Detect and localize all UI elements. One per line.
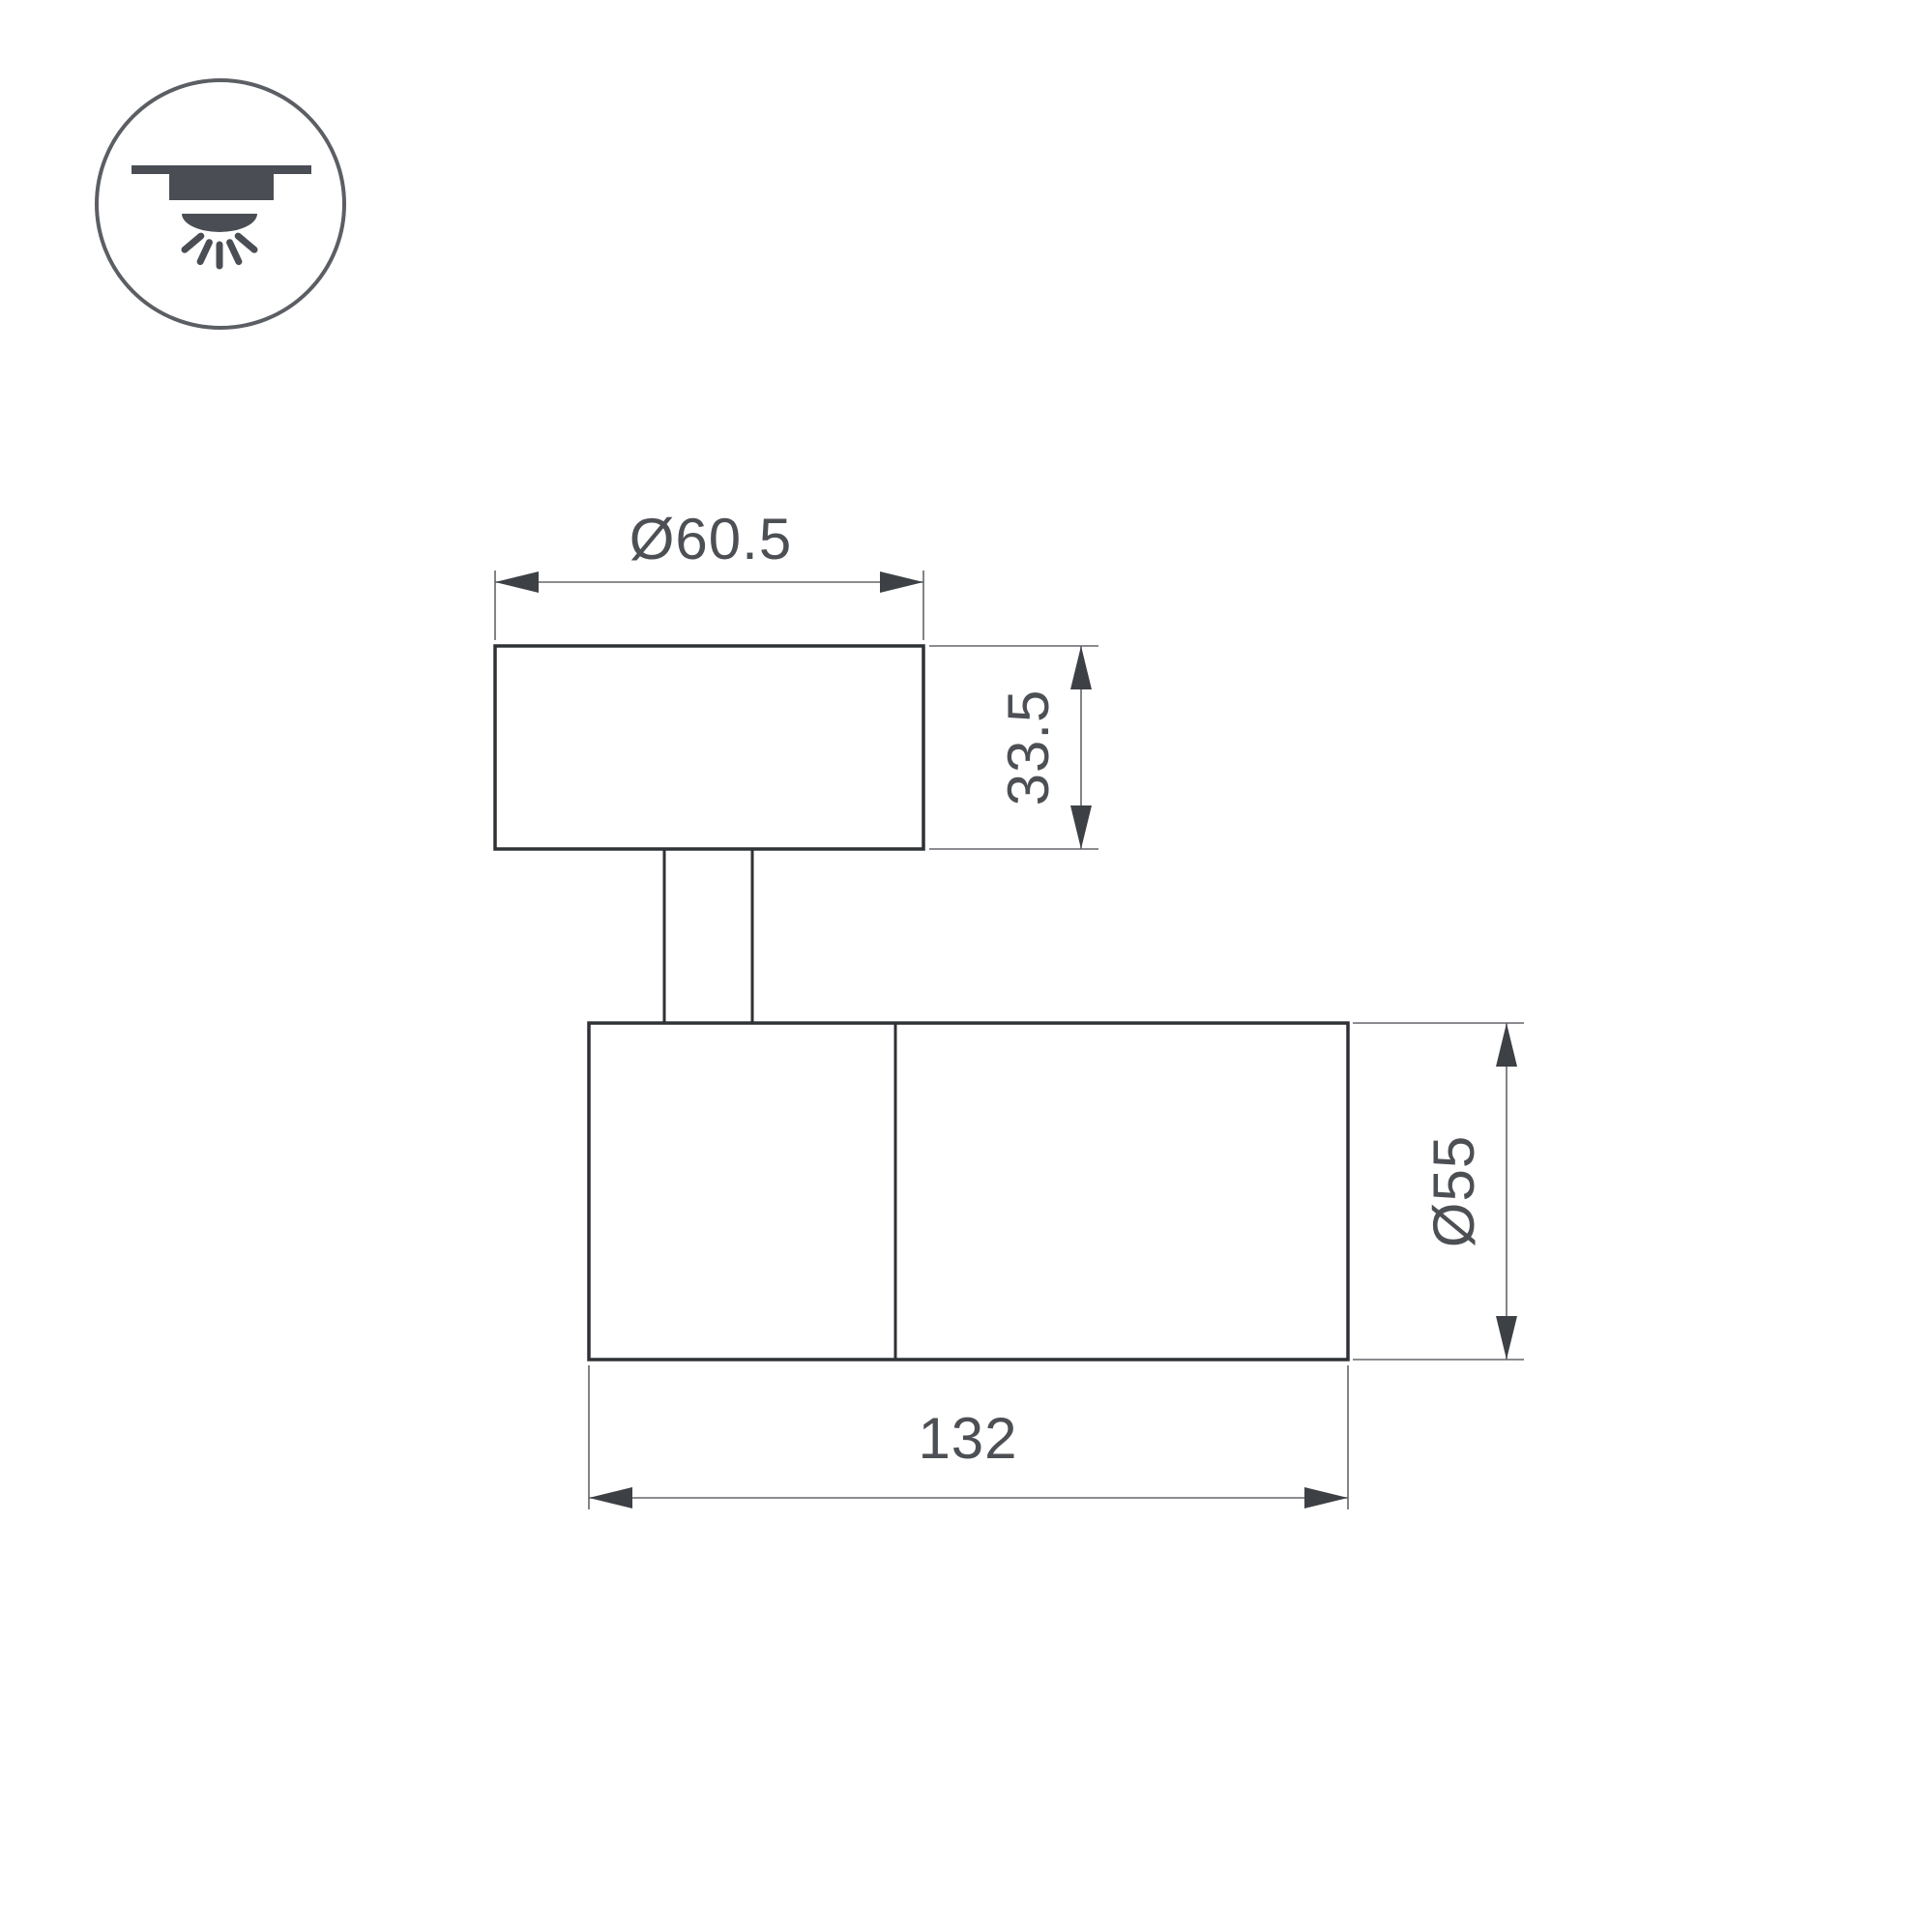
dim-label-base-height: 33.5: [996, 689, 1061, 806]
arrowhead-left: [495, 571, 539, 593]
dim-base-diameter: Ø60.5: [495, 507, 923, 640]
luminaire-outline: [495, 646, 1348, 1360]
arrowhead-down: [1496, 1316, 1517, 1360]
drawing-canvas: Ø60.5 33.5 Ø55 132: [0, 0, 1932, 1932]
arrowhead-down: [1070, 805, 1092, 849]
technical-dimension-drawing: Ø60.5 33.5 Ø55 132: [0, 0, 1932, 1932]
dim-body-length: 132: [589, 1365, 1348, 1509]
arrowhead-right: [1304, 1487, 1348, 1508]
arrowhead-right: [880, 571, 923, 593]
arrowhead-up: [1070, 646, 1092, 689]
spot-body-rect: [589, 1023, 1348, 1360]
arrowhead-up: [1496, 1023, 1517, 1067]
dim-base-height: 33.5: [929, 646, 1098, 849]
icon-ring: [97, 80, 344, 328]
dim-label-body-diameter: Ø55: [1421, 1135, 1486, 1247]
mounting-base-rect: [495, 646, 923, 849]
dim-label-body-length: 132: [918, 1406, 1017, 1471]
dim-label-base-diameter: Ø60.5: [629, 507, 792, 571]
arrowhead-left: [589, 1487, 632, 1508]
dim-body-diameter: Ø55: [1353, 1023, 1524, 1360]
icon-fixture-housing: [169, 165, 274, 200]
surface-mount-downlight-icon: [97, 80, 344, 328]
